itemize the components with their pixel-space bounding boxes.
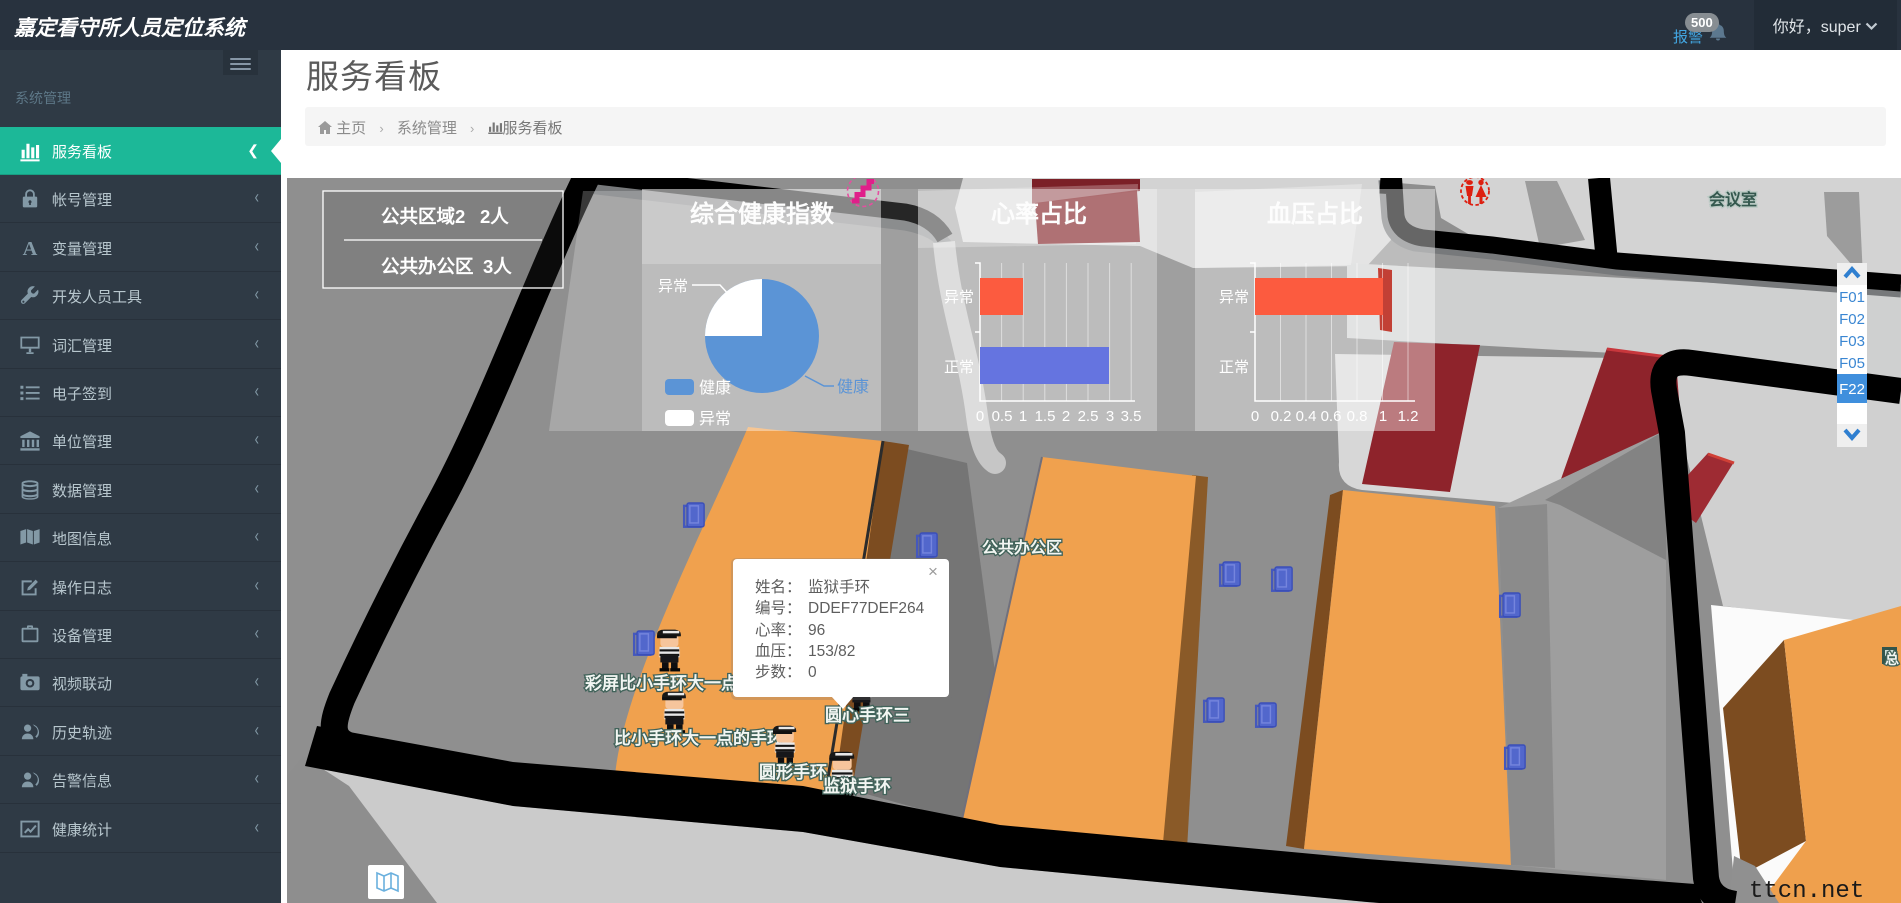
svg-text:0.5: 0.5: [992, 408, 1013, 425]
svg-text:监狱手环: 监狱手环: [808, 578, 870, 596]
svg-text:0.4: 0.4: [1296, 408, 1317, 425]
svg-text:正常: 正常: [944, 359, 974, 376]
svg-text:0: 0: [976, 408, 984, 425]
svg-text:F05: F05: [1839, 355, 1865, 372]
svg-text:异常: 异常: [699, 410, 731, 428]
svg-text:153/82: 153/82: [808, 643, 855, 660]
svg-text:公共区域2: 公共区域2: [381, 206, 465, 227]
svg-text:血压占比: 血压占比: [1267, 200, 1363, 228]
svg-text:公共办公区: 公共办公区: [381, 256, 474, 277]
svg-text:异常: 异常: [1219, 289, 1249, 306]
svg-text:0.8: 0.8: [1347, 408, 1368, 425]
svg-text:DDEF77DEF264: DDEF77DEF264: [808, 600, 925, 617]
svg-text:会议室: 会议室: [1709, 190, 1757, 209]
svg-text:圆心手环三: 圆心手环三: [825, 705, 910, 725]
svg-text:×: ×: [928, 562, 938, 581]
svg-text:综合健康指数: 综合健康指数: [690, 200, 835, 228]
svg-text:1.5: 1.5: [1035, 408, 1056, 425]
svg-text:步数：: 步数：: [755, 663, 802, 681]
svg-text:1.2: 1.2: [1398, 408, 1419, 425]
svg-text:正常: 正常: [1219, 359, 1249, 376]
svg-text:0: 0: [1251, 408, 1259, 425]
svg-text:A: A: [23, 238, 38, 260]
svg-text:异常: 异常: [944, 289, 974, 306]
svg-text:总: 总: [1885, 651, 1899, 667]
svg-text:2人: 2人: [480, 206, 509, 227]
svg-text:心率占比: 心率占比: [991, 200, 1087, 228]
svg-text:F01: F01: [1839, 289, 1865, 306]
svg-text:1: 1: [1379, 408, 1387, 425]
svg-text:圆形手环: 圆形手环: [759, 762, 827, 782]
svg-text:1: 1: [1019, 408, 1027, 425]
svg-text:0: 0: [808, 664, 817, 681]
svg-text:3: 3: [1106, 408, 1114, 425]
svg-text:血压：: 血压：: [755, 642, 802, 660]
svg-text:ttcn.net: ttcn.net: [1749, 878, 1864, 903]
svg-text:健康: 健康: [699, 379, 731, 397]
svg-text:2.5: 2.5: [1078, 408, 1099, 425]
svg-text:健康: 健康: [837, 378, 869, 396]
svg-text:监狱手环: 监狱手环: [823, 776, 891, 796]
svg-text:96: 96: [808, 622, 825, 639]
svg-text:F22: F22: [1839, 381, 1865, 398]
svg-text:公共办公区: 公共办公区: [982, 538, 1062, 557]
svg-text:2: 2: [1062, 408, 1070, 425]
svg-text:F02: F02: [1839, 311, 1865, 328]
svg-text:姓名：: 姓名：: [755, 578, 802, 596]
svg-text:异常: 异常: [658, 278, 688, 295]
svg-text:0.2: 0.2: [1271, 408, 1292, 425]
svg-text:0.6: 0.6: [1321, 408, 1342, 425]
svg-text:编号：: 编号：: [755, 599, 802, 617]
svg-text:彩屏比小手环大一点的: 彩屏比小手环大一点的: [584, 673, 755, 693]
svg-text:F03: F03: [1839, 333, 1865, 350]
svg-text:比小手环大一点的手环: 比小手环大一点的手环: [614, 728, 784, 748]
svg-text:3人: 3人: [483, 256, 512, 277]
svg-text:3.5: 3.5: [1121, 408, 1142, 425]
svg-text:心率：: 心率：: [755, 621, 802, 639]
